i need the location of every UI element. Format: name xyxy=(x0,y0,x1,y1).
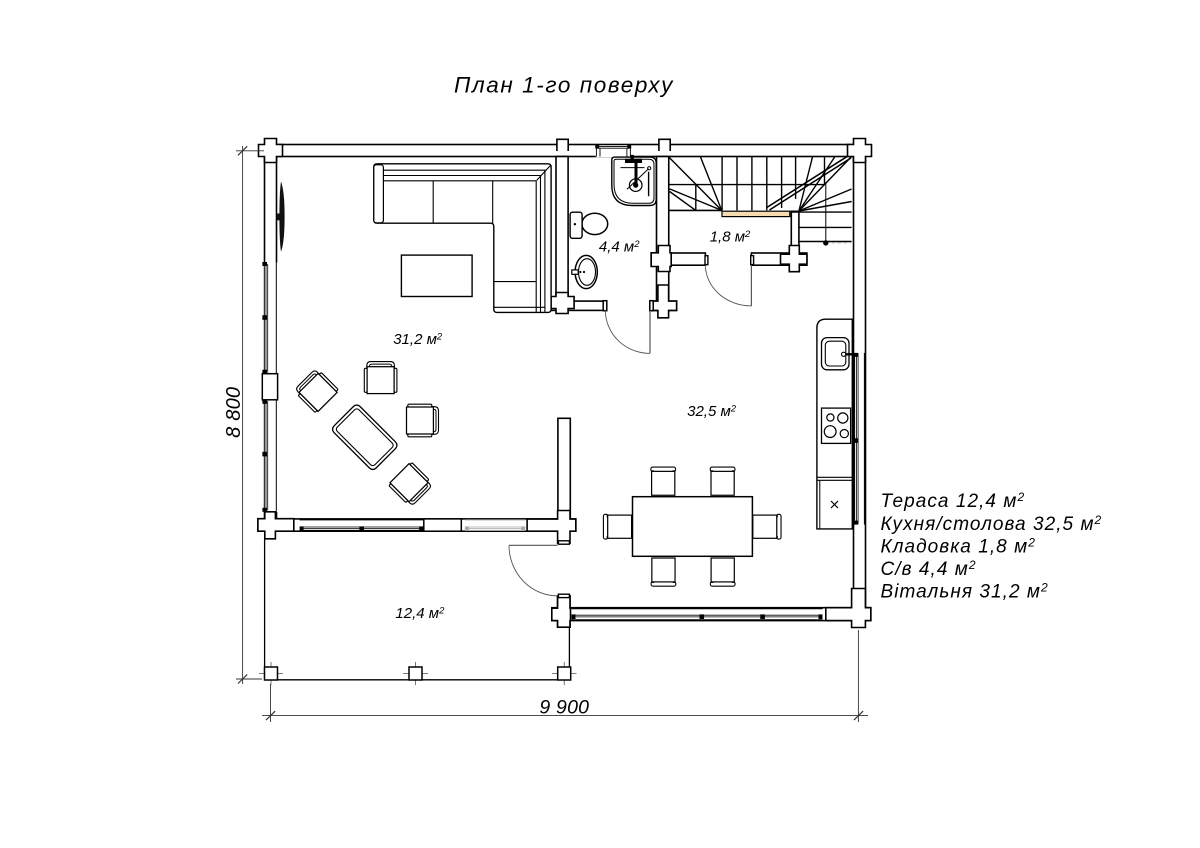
svg-text:4,4 м2: 4,4 м2 xyxy=(599,239,640,256)
svg-text:32,5 м2: 32,5 м2 xyxy=(687,403,737,420)
svg-text:9 900: 9 900 xyxy=(539,697,589,719)
svg-text:Вітальня 31,2 м2: Вітальня 31,2 м2 xyxy=(881,581,1049,603)
svg-text:1,8 м2: 1,8 м2 xyxy=(710,229,751,246)
svg-text:С/в 4,4 м2: С/в 4,4 м2 xyxy=(881,558,977,580)
svg-text:31,2 м2: 31,2 м2 xyxy=(393,331,443,348)
svg-text:Тераса 12,4 м2: Тераса 12,4 м2 xyxy=(881,490,1026,512)
svg-text:Кухня/столова 32,5 м2: Кухня/столова 32,5 м2 xyxy=(881,513,1103,535)
svg-text:8 800: 8 800 xyxy=(223,387,245,438)
svg-text:12,4 м2: 12,4 м2 xyxy=(395,605,445,622)
svg-text:План 1-го поверху: План 1-го поверху xyxy=(454,73,674,98)
svg-text:Кладовка 1,8 м2: Кладовка 1,8 м2 xyxy=(881,535,1036,557)
